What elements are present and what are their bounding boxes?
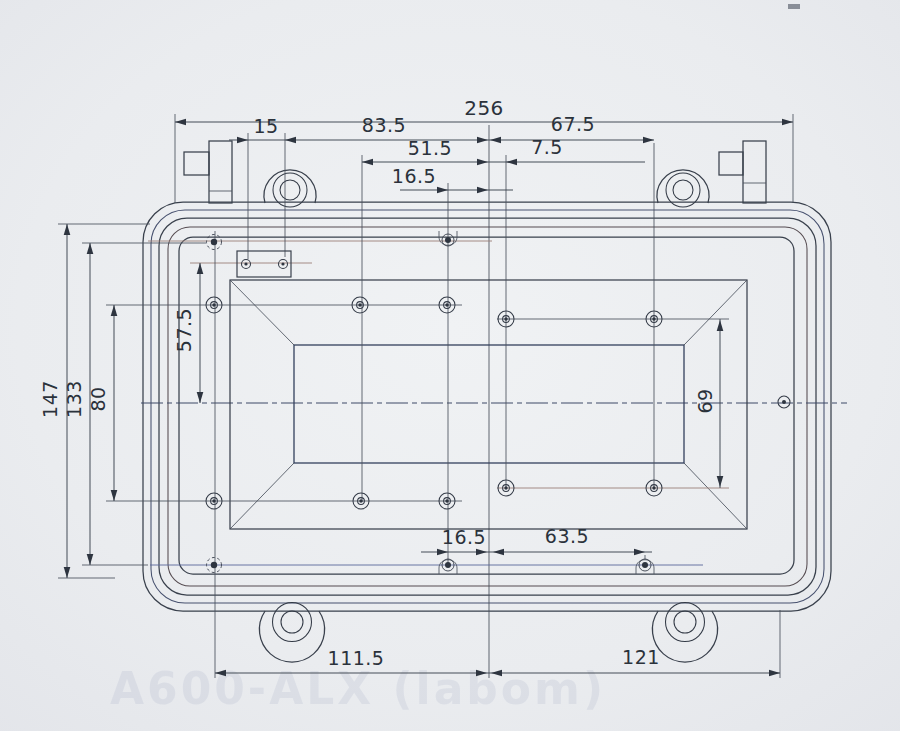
dim-label-ear-to-center: 83.5 (362, 114, 406, 136)
dim-label-center-to-boss-offset: 7.5 (531, 136, 563, 158)
dim-label-block-to-centerline: 57.5 (173, 308, 195, 352)
dim-label-center-to-bottom-tab-right: 63.5 (545, 525, 589, 547)
dim-label-latch-pitch: 15 (253, 115, 278, 137)
dim-label-overall-height: 147 (39, 380, 61, 418)
enclosure-dimension-drawing: A600-ALX (labom) (0, 0, 900, 731)
scanned-paper-background (0, 0, 900, 731)
dim-label-right-boss-span: 69 (694, 388, 716, 413)
dim-label-overall-width: 256 (464, 96, 504, 120)
dim-label-top-tab-to-center: 16.5 (392, 165, 436, 187)
scan-artifact (788, 4, 800, 9)
dim-label-bottom-left-to-center: 111.5 (328, 647, 385, 669)
dim-label-center-to-right-boss: 67.5 (551, 113, 595, 135)
dim-label-bottom-tab-to-center: 16.5 (442, 526, 486, 548)
dim-label-left-boss-span: 80 (87, 386, 109, 411)
dim-label-corner-hole-span: 133 (63, 380, 85, 418)
watermark-text: A600-ALX (labom) (110, 663, 606, 714)
dim-label-left-boss-to-center: 51.5 (408, 137, 452, 159)
dim-label-center-to-right-hole: 121 (622, 646, 660, 668)
